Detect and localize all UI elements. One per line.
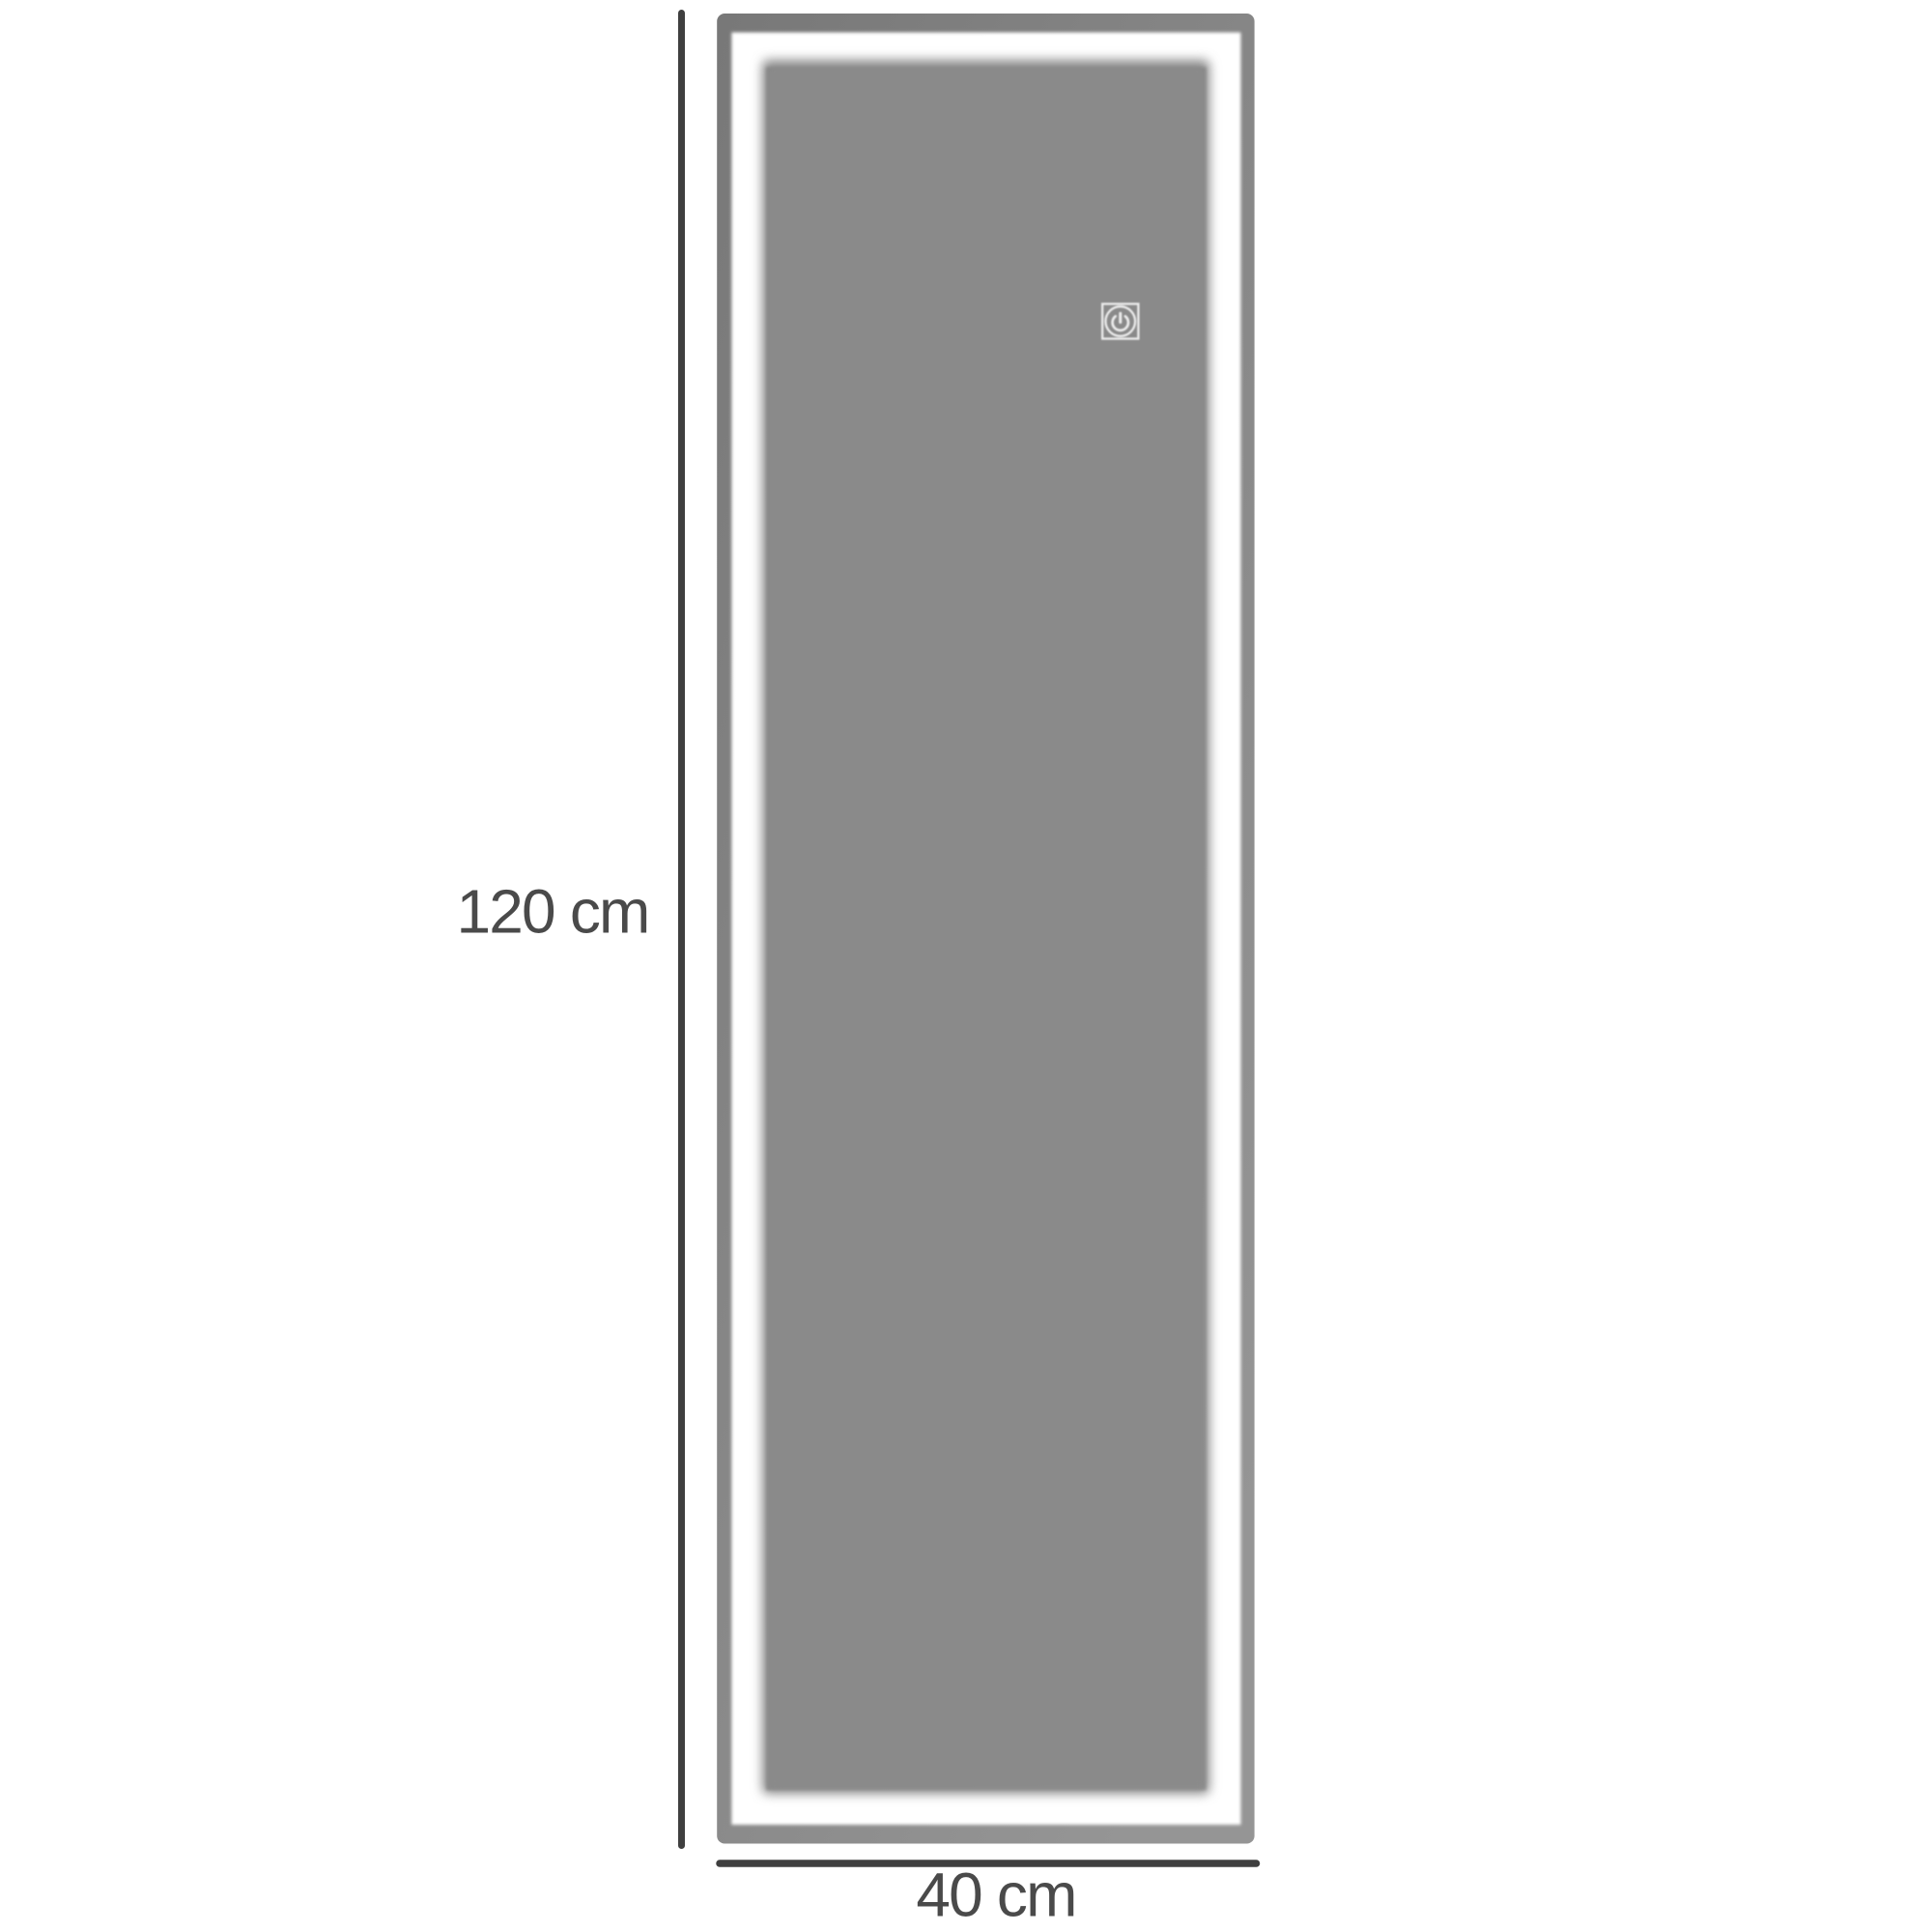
svg-text:120 cm: 120 cm — [456, 877, 648, 947]
svg-text:40 cm: 40 cm — [916, 1861, 1075, 1930]
